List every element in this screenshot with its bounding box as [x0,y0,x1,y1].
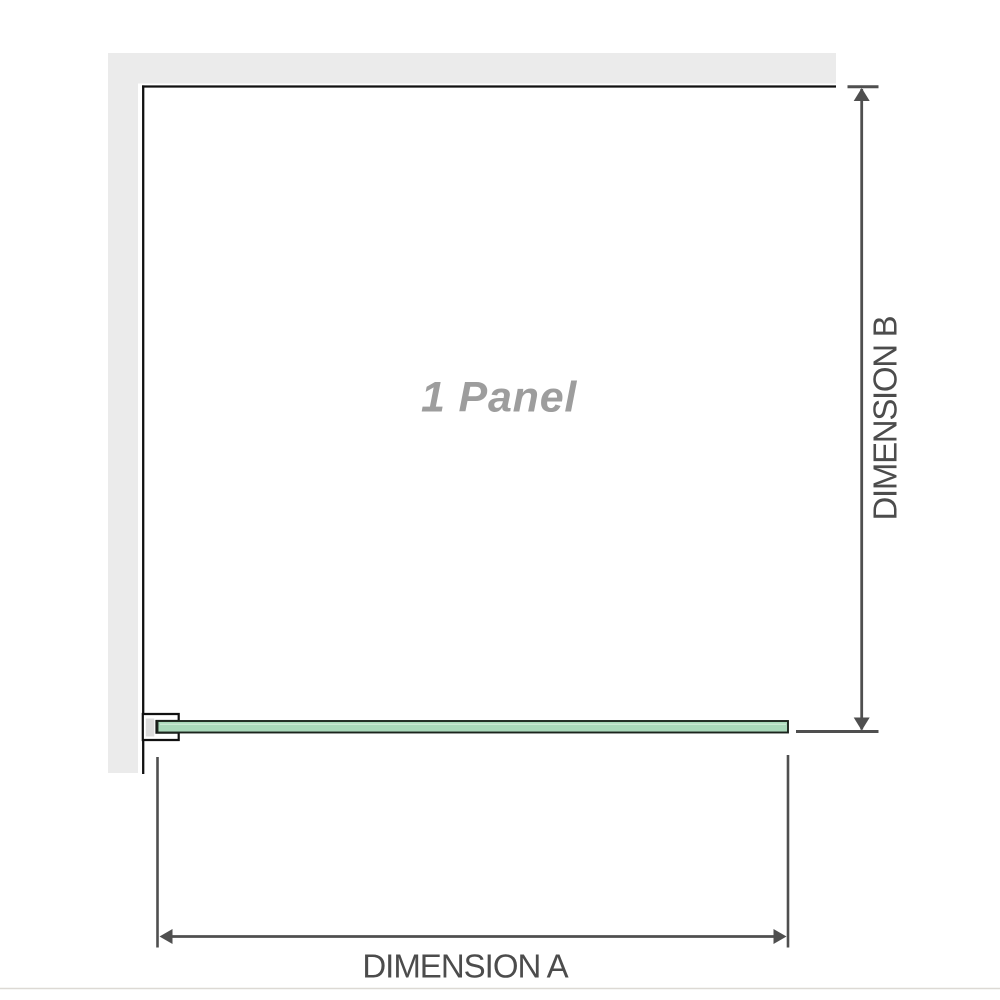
svg-text:1 Panel: 1 Panel [421,374,577,422]
svg-text:DIMENSION B: DIMENSION B [867,316,904,520]
svg-text:DIMENSION A: DIMENSION A [362,948,568,985]
